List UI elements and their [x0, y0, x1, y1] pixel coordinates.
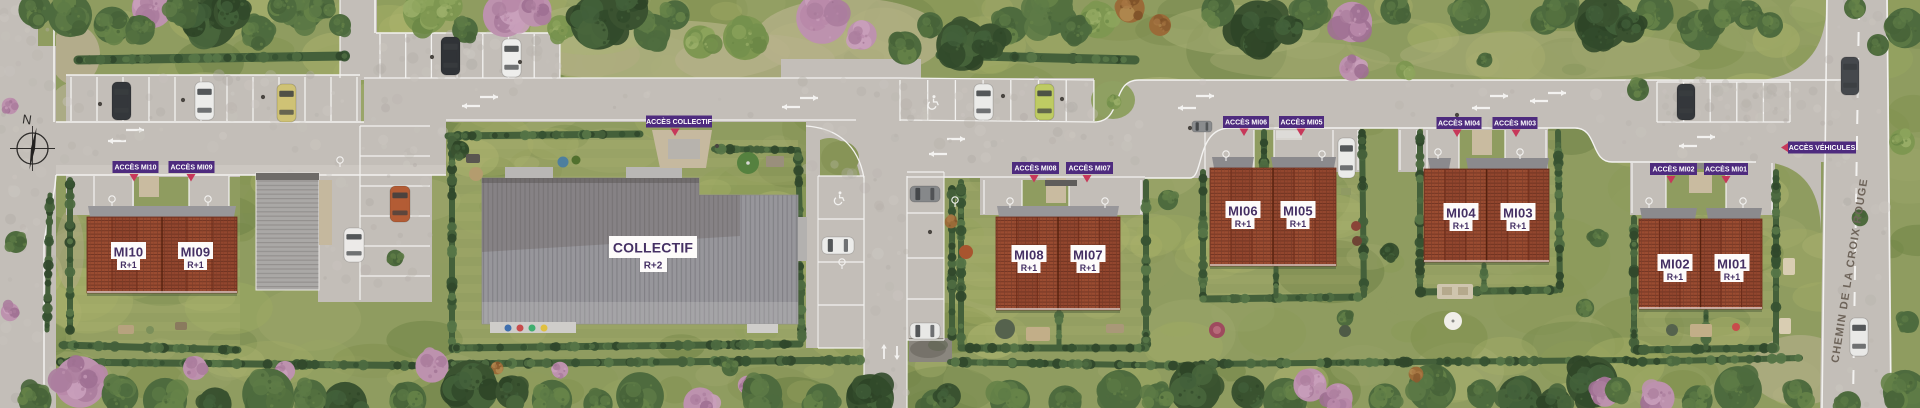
svg-text:R+1: R+1	[1021, 263, 1037, 273]
svg-text:R+1: R+1	[1510, 221, 1526, 231]
svg-text:R+1: R+1	[1235, 219, 1251, 229]
svg-text:MI07: MI07	[1073, 248, 1103, 263]
svg-text:ACCÈS MI08: ACCÈS MI08	[1014, 164, 1056, 173]
svg-text:R+1: R+1	[1724, 272, 1740, 282]
svg-text:ACCÈS MI03: ACCÈS MI03	[1494, 119, 1536, 128]
svg-text:MI09: MI09	[181, 245, 211, 260]
svg-text:ACCÈS MI04: ACCÈS MI04	[1438, 119, 1480, 128]
svg-text:ACCÈS MI01: ACCÈS MI01	[1705, 165, 1747, 174]
svg-text:MI06: MI06	[1228, 204, 1258, 219]
svg-text:ACCÈS MI02: ACCÈS MI02	[1652, 165, 1694, 174]
svg-text:ACCÈS MI05: ACCÈS MI05	[1280, 118, 1322, 127]
svg-text:R+1: R+1	[1080, 263, 1096, 273]
svg-text:R+1: R+1	[120, 260, 136, 270]
svg-text:ACCÈS COLLECTIF: ACCÈS COLLECTIF	[646, 117, 712, 126]
svg-text:MI03: MI03	[1503, 206, 1533, 221]
svg-text:ACCÈS MI07: ACCÈS MI07	[1068, 164, 1110, 173]
svg-text:MI04: MI04	[1446, 206, 1476, 221]
svg-text:R+1: R+1	[187, 260, 203, 270]
svg-text:R+2: R+2	[644, 261, 663, 272]
svg-text:COLLECTIF: COLLECTIF	[613, 240, 694, 256]
svg-text:MI01: MI01	[1717, 257, 1747, 272]
svg-text:ACCÈS MI10: ACCÈS MI10	[114, 163, 156, 172]
svg-text:R+1: R+1	[1290, 219, 1306, 229]
svg-text:R+1: R+1	[1667, 272, 1683, 282]
svg-text:MI08: MI08	[1014, 248, 1044, 263]
svg-text:MI10: MI10	[114, 245, 144, 260]
svg-text:ACCÈS MI09: ACCÈS MI09	[170, 163, 212, 172]
svg-text:MI02: MI02	[1660, 257, 1690, 272]
svg-text:MI05: MI05	[1283, 204, 1313, 219]
svg-text:ACCÈS MI06: ACCÈS MI06	[1225, 118, 1267, 127]
svg-text:ACCÈS VÉHICULES: ACCÈS VÉHICULES	[1789, 143, 1856, 152]
svg-text:R+1: R+1	[1453, 221, 1469, 231]
